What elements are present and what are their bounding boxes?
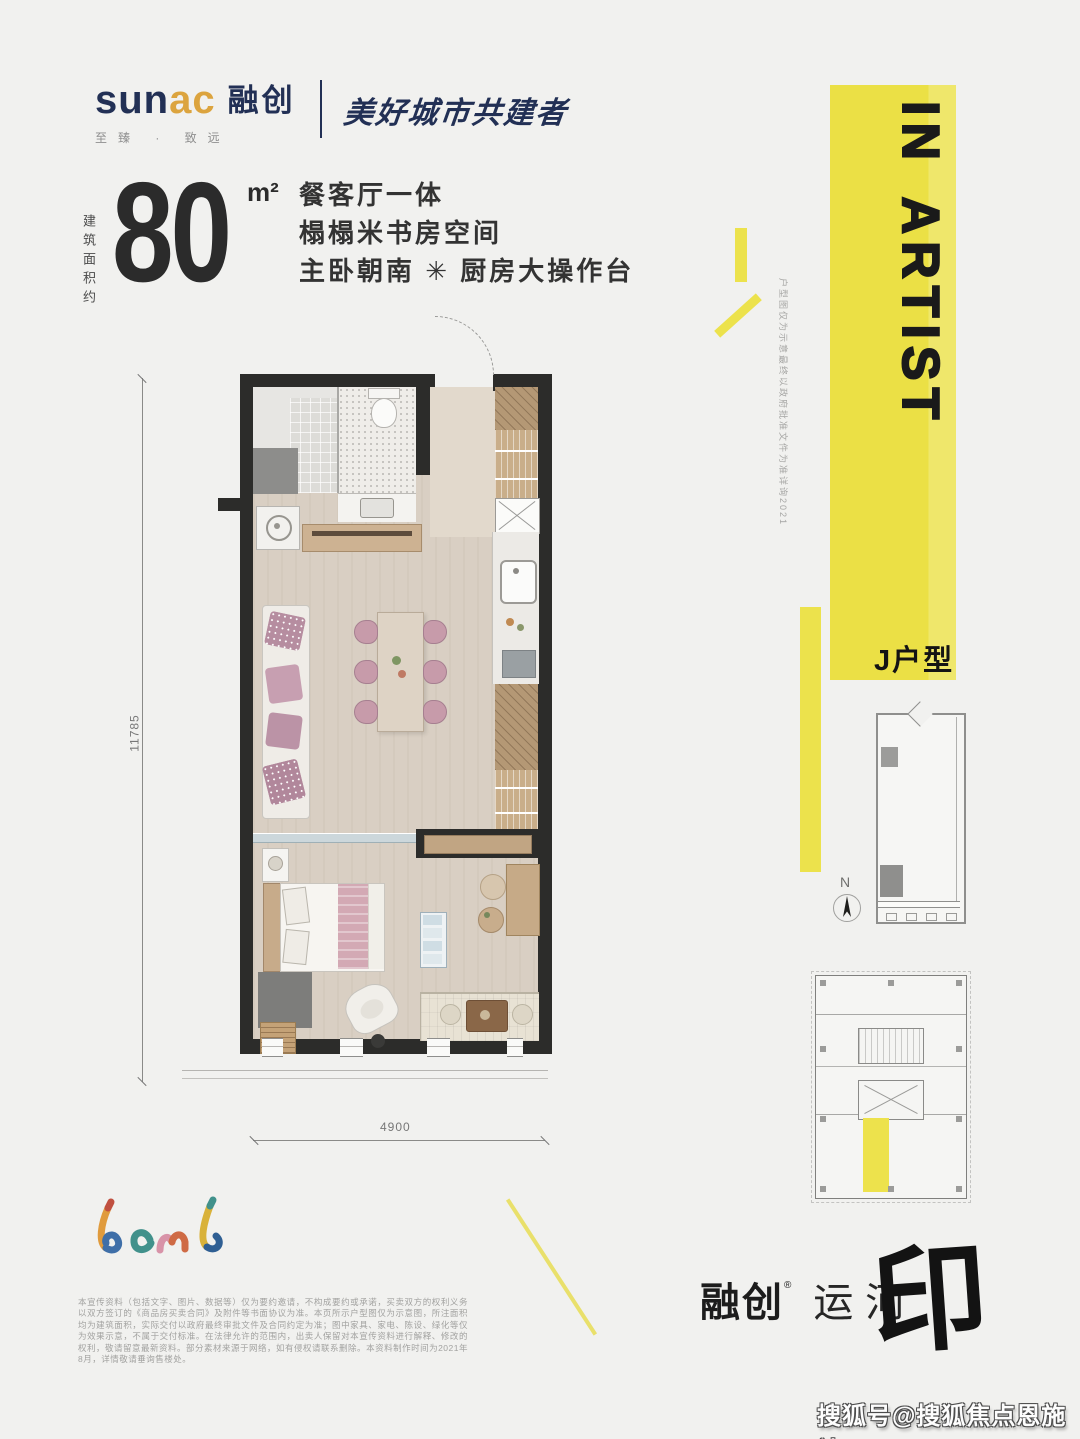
divider-console: [424, 835, 532, 854]
floor-cushion: [440, 1004, 461, 1025]
brand-slogan: 美好城市共建者: [342, 88, 571, 132]
cooktop-appliance: [502, 650, 536, 678]
entry-hall-floor: [430, 387, 495, 537]
tea-set: [480, 1010, 490, 1020]
brand-lockup: sunac 融创 至臻 · 致远: [95, 75, 296, 146]
table-decor: [398, 670, 406, 678]
study-desk: [506, 864, 540, 936]
unit-outline-diagram: [876, 713, 966, 924]
unit-core-block: [881, 747, 898, 767]
brand-divider: [320, 80, 322, 138]
feature-line: 主卧朝南 ✳ 厨房大操作台: [299, 252, 634, 290]
sunac-logo-ac: ac: [169, 78, 216, 122]
floor-plan: [240, 374, 552, 1068]
window: [340, 1038, 363, 1057]
compass-icon: [831, 892, 863, 929]
brand-values-text: 至臻 · 致远: [95, 129, 296, 146]
yellow-accent-bar-tall: [800, 607, 821, 872]
sofa-cushion: [265, 664, 304, 704]
unit-sill-tick: [906, 913, 917, 921]
type-banner: IN ARTIST J户型: [830, 85, 956, 680]
unit-type-label: J户型: [874, 637, 954, 679]
bed-pillow: [282, 887, 310, 926]
wall-stub-left: [218, 498, 242, 511]
storage-cabinet: [495, 684, 538, 770]
yellow-accent-diagonal: [714, 293, 762, 337]
sunac-logo-cn: 融创: [228, 75, 296, 120]
dining-chair: [354, 700, 378, 724]
wardrobe-hanging: [495, 430, 538, 498]
side-table-plant: [484, 912, 490, 918]
keyplan-core-stairs: [858, 1028, 924, 1064]
washing-machine-door: [274, 523, 280, 529]
feature-list: 餐客厅一体 榻榻米书房空间 主卧朝南 ✳ 厨房大操作台: [299, 176, 634, 290]
fridge-gray-box: [253, 448, 298, 494]
bed-duvet-fold: [368, 884, 384, 969]
window: [427, 1038, 450, 1057]
project-logo-sunac: 融创: [700, 1281, 784, 1325]
wall-top: [240, 374, 435, 387]
wall-bathroom-partition: [416, 387, 430, 475]
yellow-accent-diagonal-bottom: [506, 1198, 597, 1335]
fruit-bowl: [517, 624, 524, 631]
dining-chair: [354, 660, 378, 684]
shower-glass-line: [337, 387, 339, 493]
glass-partition: [253, 833, 416, 843]
side-note-vertical: 户型图仅为示意最终以政府批准文件为准详询2021: [777, 278, 790, 526]
keyplan-highlight-unit: [863, 1118, 889, 1192]
dimension-line-horizontal: [253, 1140, 545, 1141]
unit-sill-tick: [886, 913, 897, 921]
kitchen-upper-cabinet: [495, 387, 538, 430]
feature-line: 餐客厅一体: [299, 176, 634, 214]
dining-chair: [354, 620, 378, 644]
dining-chair: [423, 700, 447, 724]
desk-chair: [480, 874, 506, 900]
sofa-cushion: [264, 611, 306, 652]
toilet-bowl: [371, 398, 397, 428]
area-unit: m²: [247, 177, 279, 208]
leml-script-logo: Leml: [88, 1192, 248, 1277]
closet-box: [495, 498, 540, 534]
sunac-logo-sun: sun: [95, 78, 169, 122]
feature-line: 榻榻米书房空间: [299, 214, 634, 252]
keyplan-diagram: [815, 975, 967, 1199]
registered-mark: ®: [784, 1280, 791, 1291]
fruit-bowl: [506, 618, 514, 626]
legal-disclaimer: 本宣传资料（包括文字、图片、数据等）仅为要约邀请，不构成要约或承诺，买卖双方的权…: [78, 1297, 468, 1366]
table-plant: [392, 656, 401, 665]
kitchen-sink: [500, 560, 537, 604]
wall-right: [538, 374, 552, 1054]
dining-chair: [423, 620, 447, 644]
dimension-line-vertical: [142, 378, 143, 1082]
kitchen-faucet: [513, 568, 519, 574]
north-label: N: [840, 874, 850, 890]
sunac-logo: sunac: [95, 80, 216, 120]
dimension-height-label: 11785: [128, 714, 142, 751]
wall-left: [240, 374, 253, 1054]
poster-canvas: sunac 融创 至臻 · 致远 美好城市共建者 建筑面积约 80 m² 餐客厅…: [0, 0, 1080, 1439]
bed-blanket: [338, 884, 368, 969]
window-sill-line: [182, 1078, 548, 1079]
unit-window-band: [878, 901, 960, 908]
entry-console-slat: [312, 531, 412, 536]
window: [507, 1038, 523, 1057]
entry-console: [302, 524, 422, 552]
window-sill-line: [182, 1070, 548, 1071]
dimension-width-label: 4900: [380, 1120, 411, 1134]
yellow-accent-bar: [735, 228, 747, 282]
wardrobe-hanging: [495, 770, 538, 830]
unit-inner-line: [956, 717, 957, 901]
sofa-cushion: [265, 712, 303, 750]
area-prefix-vertical: 建筑面积约: [79, 214, 98, 324]
unit-door-notch: [907, 701, 932, 726]
bedside-lamp: [268, 856, 283, 871]
shelf-unit: [420, 912, 447, 968]
side-table: [478, 907, 504, 933]
area-value: 80: [112, 162, 229, 304]
window: [262, 1038, 283, 1057]
unit-sill-tick: [926, 913, 937, 921]
vanity-sink: [360, 498, 394, 518]
dining-chair: [423, 660, 447, 684]
watermark: 搜狐号@搜狐焦点恩施站: [817, 1396, 1080, 1439]
unit-core-block: [880, 865, 903, 897]
unit-sill-tick: [946, 913, 957, 921]
floor-cushion: [512, 1004, 533, 1025]
project-logo-seal: 印: [872, 1242, 988, 1358]
banner-title: IN ARTIST: [838, 101, 950, 571]
bed-pillow: [282, 929, 309, 965]
keyplan-core-elevator: [858, 1080, 924, 1120]
bedroom-rug-gray: [258, 972, 312, 1028]
entry-door-arc: [435, 316, 494, 375]
floor-lamp: [371, 1034, 385, 1048]
